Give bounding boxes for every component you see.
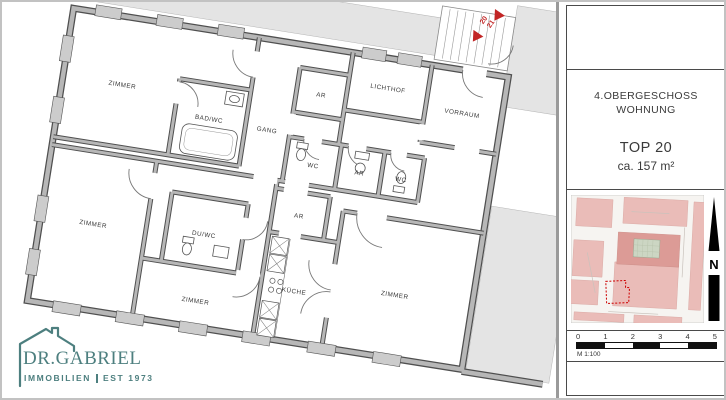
scale-tick: 3 bbox=[658, 332, 662, 341]
info-sidebar: 4.OBERGESCHOSS WOHNUNG TOP 20 ca. 157 m² bbox=[556, 0, 726, 400]
north-label: N bbox=[709, 257, 718, 272]
north-arrow-icon: N bbox=[707, 195, 721, 323]
logo-tagline-left: IMMOBILIEN bbox=[24, 373, 91, 383]
title-block-empty-top bbox=[567, 6, 725, 70]
scale-tick: 5 bbox=[713, 332, 717, 341]
scale-tick: 1 bbox=[603, 332, 607, 341]
logo-tagline-separator-icon bbox=[96, 374, 98, 383]
scale-label: M 1:100 bbox=[577, 351, 725, 358]
floor-title-line1: 4.OBERGESCHOSS bbox=[567, 70, 725, 102]
title-block: 4.OBERGESCHOSS WOHNUNG TOP 20 ca. 157 m² bbox=[566, 5, 726, 396]
agency-logo: DR.GABRIEL IMMOBILIEN EST 1973 bbox=[16, 324, 206, 394]
scale-tick: 0 bbox=[576, 332, 580, 341]
logo-tagline-right: EST 1973 bbox=[103, 373, 154, 383]
unit-label: TOP 20 bbox=[567, 140, 725, 156]
scale-tick: 2 bbox=[631, 332, 635, 341]
title-section: 4.OBERGESCHOSS WOHNUNG TOP 20 ca. 157 m² bbox=[567, 70, 725, 190]
floor-title-line2: WOHNUNG bbox=[567, 104, 725, 116]
location-map-section: N bbox=[567, 190, 725, 331]
scale-ticks: 0 1 2 3 4 5 bbox=[567, 331, 725, 341]
logo-brand: DR.GABRIEL bbox=[23, 348, 141, 370]
location-map bbox=[571, 195, 704, 323]
scale-tick: 4 bbox=[685, 332, 689, 341]
scale-bar bbox=[576, 342, 717, 349]
scale-bar-section: 0 1 2 3 4 5 M 1:100 bbox=[567, 331, 725, 362]
logo-tagline: IMMOBILIEN EST 1973 bbox=[24, 373, 154, 383]
area-label: ca. 157 m² bbox=[567, 159, 725, 173]
